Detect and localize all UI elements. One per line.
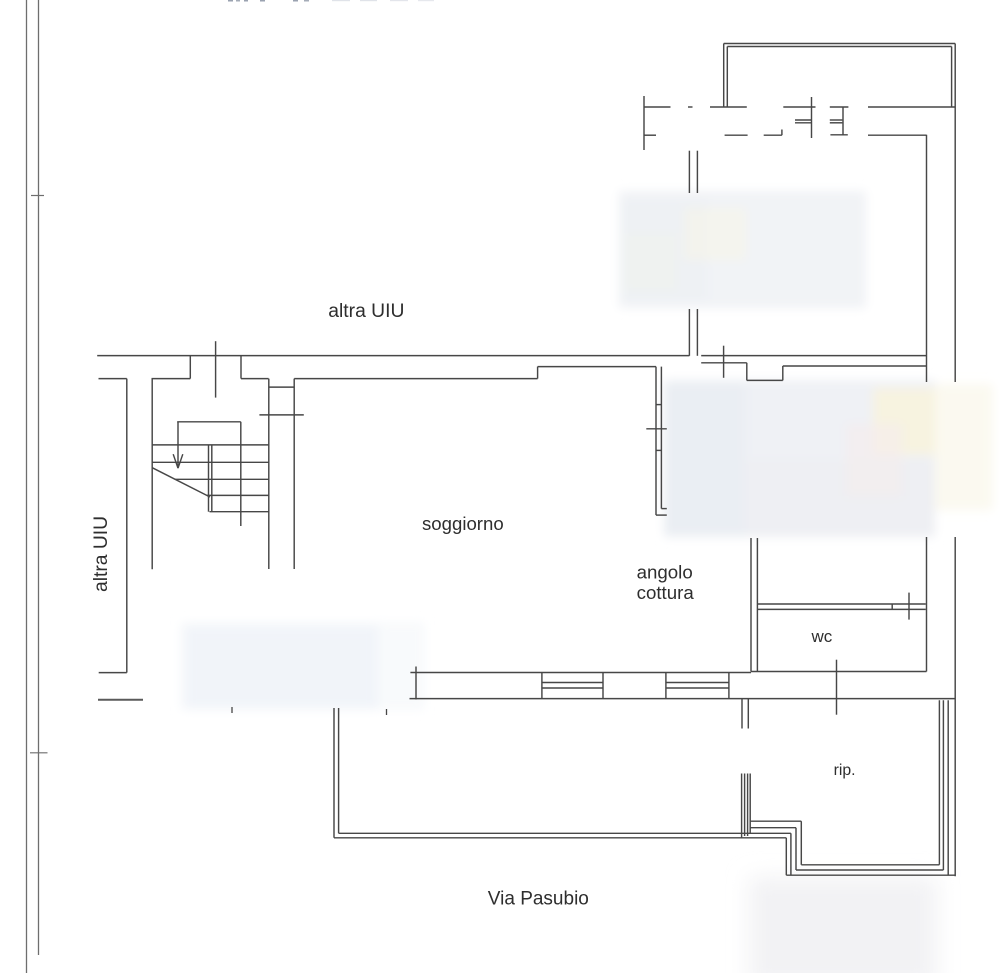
- svg-text:cottura: cottura: [637, 582, 695, 603]
- svg-text:rip.: rip.: [834, 762, 856, 779]
- svg-text:wc: wc: [811, 627, 833, 646]
- svg-text:angolo: angolo: [637, 561, 693, 582]
- svg-text:altra UIU: altra UIU: [91, 516, 112, 592]
- svg-text:soggiorno: soggiorno: [422, 513, 504, 534]
- svg-text:Via Pasubio: Via Pasubio: [488, 889, 589, 910]
- svg-text:altra UIU: altra UIU: [328, 301, 404, 322]
